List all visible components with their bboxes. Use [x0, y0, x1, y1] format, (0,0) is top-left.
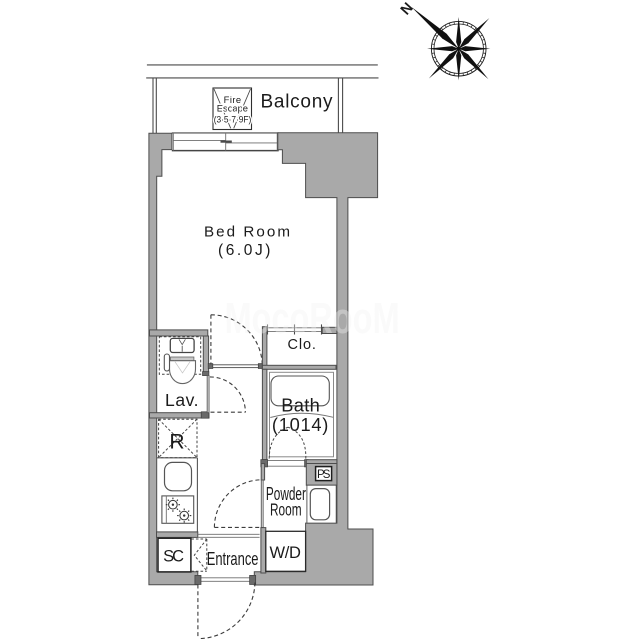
svg-text:Entrance: Entrance [207, 549, 259, 569]
svg-text:Room: Room [270, 500, 302, 520]
svg-text:(1014): (1014) [272, 414, 328, 435]
svg-text:SC: SC [163, 547, 184, 565]
svg-text:Bath: Bath [281, 394, 320, 415]
svg-text:Bed Room: Bed Room [204, 223, 290, 240]
svg-text:Escape: Escape [217, 103, 248, 114]
svg-text:MocoRooM: MocoRooM [225, 294, 400, 343]
svg-text:W/D: W/D [269, 544, 301, 562]
svg-text:(3·5·7·9F): (3·5·7·9F) [214, 113, 252, 124]
svg-text:Lav.: Lav. [165, 390, 199, 410]
svg-text:Balcony: Balcony [261, 92, 334, 113]
svg-text:(6.0J): (6.0J) [218, 242, 271, 259]
svg-text:PS: PS [317, 469, 331, 481]
svg-text:R: R [169, 431, 184, 454]
